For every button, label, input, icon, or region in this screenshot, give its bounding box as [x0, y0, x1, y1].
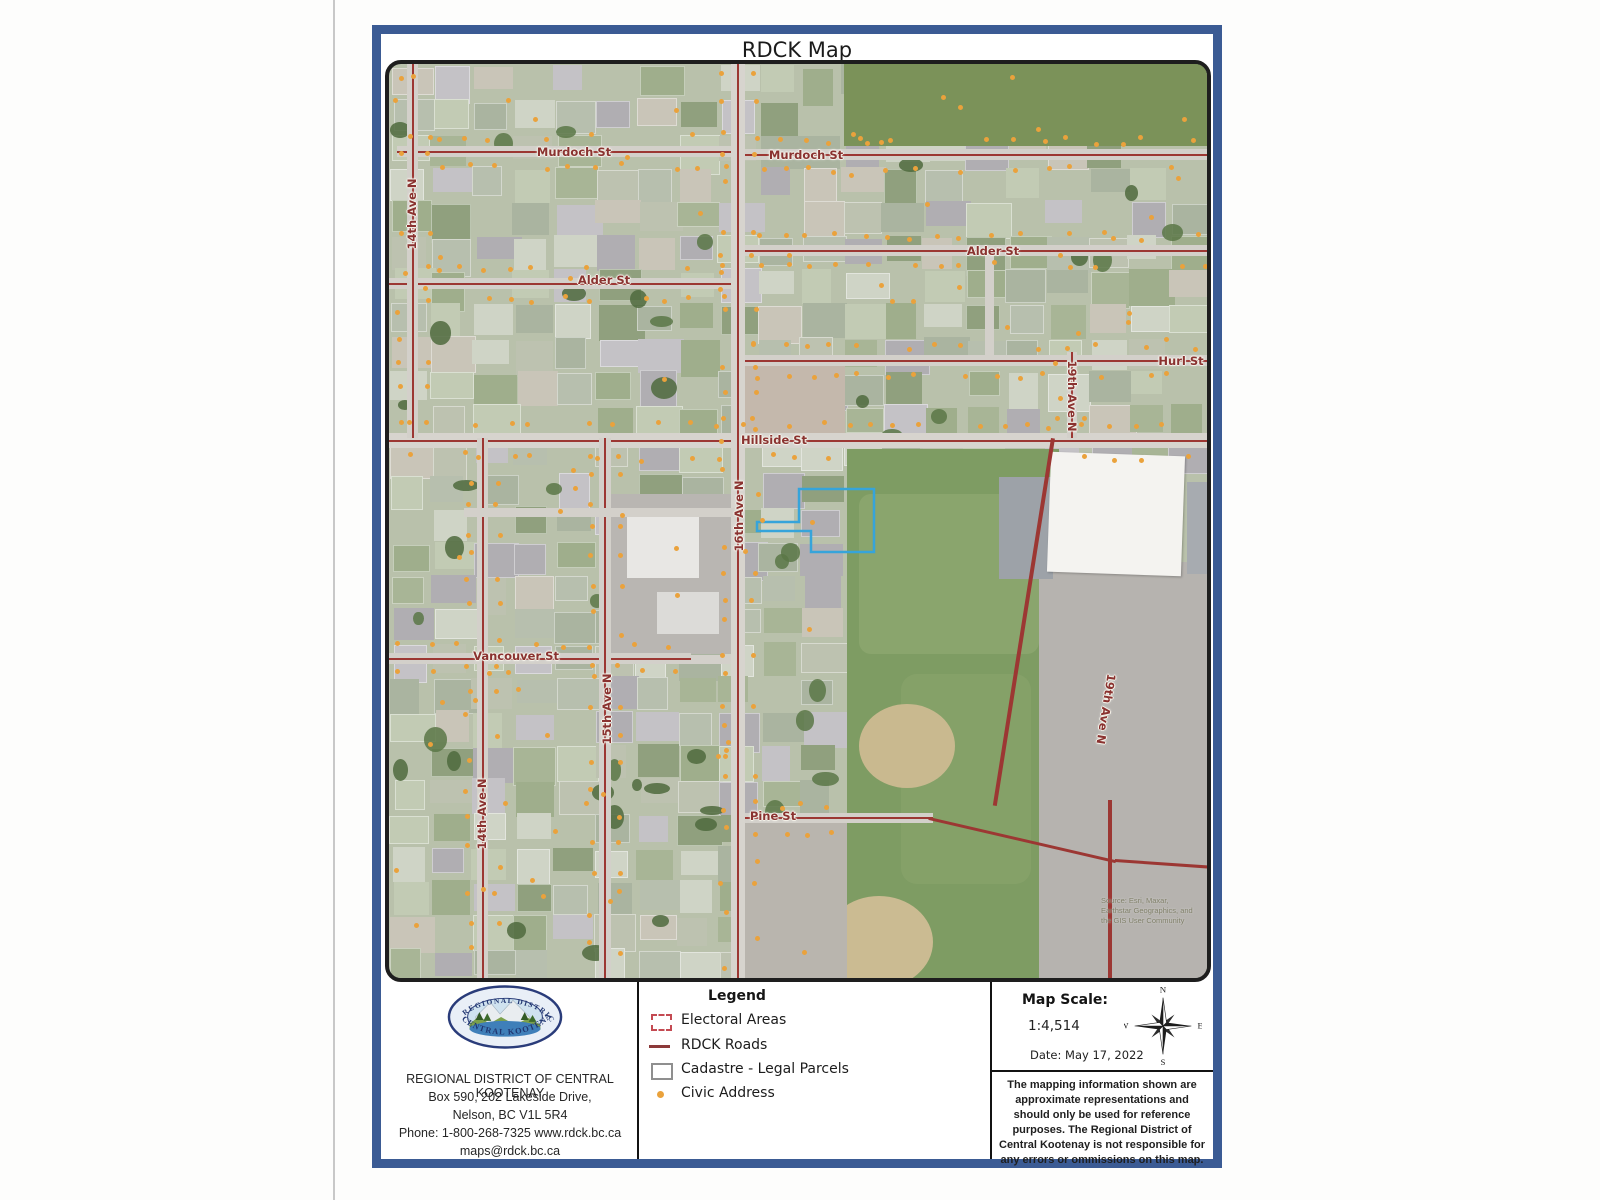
legend-row-cadastre: Cadastre - Legal Parcels — [639, 1060, 990, 1082]
civic-address-dot — [591, 584, 596, 589]
civic-address-dot — [849, 173, 854, 178]
civic-address-dot — [497, 638, 502, 643]
civic-address-dot — [956, 236, 961, 241]
civic-address-dot — [886, 375, 891, 380]
civic-address-dot — [588, 454, 593, 459]
legend-label: RDCK Roads — [681, 1037, 767, 1053]
civic-address-dot — [913, 263, 918, 268]
legend-panel: Legend Electoral Areas RDCK Roads Cadast… — [639, 982, 990, 1159]
civic-address-dot — [958, 343, 963, 348]
civic-address-dot — [1193, 347, 1198, 352]
civic-address-dot — [463, 712, 468, 717]
civic-address-dot — [826, 456, 831, 461]
civic-address-dot — [588, 553, 593, 558]
civic-address-dot — [785, 832, 790, 837]
street-label: Murdoch St — [537, 145, 611, 159]
civic-address-dot — [496, 481, 501, 486]
civic-address-dot — [563, 294, 568, 299]
compass-east-label: E — [1198, 1021, 1202, 1031]
scan-edge-artifact — [333, 0, 335, 1200]
civic-address-dot — [957, 285, 962, 290]
civic-address-dot — [1176, 176, 1181, 181]
civic-address-dot — [428, 742, 433, 747]
civic-address-dot — [469, 550, 474, 555]
civic-address-dot — [753, 571, 758, 576]
civic-address-dot — [1011, 137, 1016, 142]
civic-address-dot — [1046, 426, 1051, 431]
map-parcel — [1210, 68, 1211, 90]
civic-address-dot — [810, 520, 815, 525]
civic-address-dot — [397, 337, 402, 342]
rdck-roads-icon — [647, 1038, 673, 1054]
civic-address-dot — [1067, 231, 1072, 236]
civic-address-dot — [723, 598, 728, 603]
org-address-1: Box 590, 202 Lakeside Drive, — [383, 1090, 637, 1104]
civic-address-dot — [510, 421, 515, 426]
civic-address-dot — [440, 165, 445, 170]
civic-address-dot — [749, 253, 754, 258]
civic-address-dot — [722, 294, 727, 299]
civic-address-dot — [481, 268, 486, 273]
civic-address-dot — [762, 167, 767, 172]
compass-rose-icon: N E S W — [1124, 984, 1202, 1068]
map-parcel — [1210, 168, 1211, 205]
civic-address-dot — [1094, 142, 1099, 147]
civic-address-dot — [724, 910, 729, 915]
civic-address-dot — [675, 167, 680, 172]
legend-row-electoral-areas: Electoral Areas — [639, 1011, 990, 1033]
civic-address-dot — [454, 641, 459, 646]
scale-panel: Map Scale: 1:4,514 Date: May 17, 2022 N … — [992, 982, 1213, 1159]
civic-address-dot — [396, 360, 401, 365]
rdck-logo: REGIONAL DISTRICT CENTRAL KOOTENAY — [446, 984, 564, 1050]
source-line: Earthstar Geographics, and — [1101, 906, 1209, 916]
map-canvas: Source: Esri, Maxar, Earthstar Geographi… — [389, 64, 1211, 982]
map-scale-value: 1:4,514 — [1028, 1018, 1080, 1034]
source-line: Source: Esri, Maxar, — [1101, 896, 1209, 906]
civic-address-dot — [588, 705, 593, 710]
legend-label: Cadastre - Legal Parcels — [681, 1061, 849, 1077]
civic-address-dot — [753, 365, 758, 370]
civic-address-dot — [826, 141, 831, 146]
civic-address-dot — [1134, 424, 1139, 429]
civic-address-dot — [751, 704, 756, 709]
civic-address-dot — [885, 235, 890, 240]
document-frame: RDCK Map So — [372, 25, 1222, 1168]
civic-address-dot — [751, 230, 756, 235]
civic-address-dot — [618, 553, 623, 558]
civic-address-dot — [720, 704, 725, 709]
compass-south-label: S — [1161, 1057, 1166, 1067]
civic-address-dot — [424, 420, 429, 425]
civic-address-dot — [469, 921, 474, 926]
civic-address-dot — [568, 276, 573, 281]
street-label: Alder St — [967, 244, 1019, 258]
civic-address-dot — [812, 375, 817, 380]
civic-address-dot — [1055, 416, 1060, 421]
civic-address-dot — [498, 533, 503, 538]
civic-address-dot — [716, 754, 721, 759]
civic-address-dot — [759, 263, 764, 268]
civic-address-dot — [644, 296, 649, 301]
civic-address-dot — [618, 705, 623, 710]
civic-address-dot — [1127, 311, 1132, 316]
civic-address-dot — [932, 342, 937, 347]
civic-address-dot — [465, 843, 470, 848]
compass-west-label: W — [1124, 1021, 1129, 1031]
civic-address-dot — [656, 420, 661, 425]
legend-label: Civic Address — [681, 1085, 775, 1101]
legend-row-rdck-roads: RDCK Roads — [639, 1036, 990, 1058]
civic-address-dot — [1058, 396, 1063, 401]
civic-address-dot — [590, 524, 595, 529]
civic-address-dot — [513, 454, 518, 459]
organization-panel: REGIONAL DISTRICT CENTRAL KOOTENAY REGIO… — [383, 982, 637, 1159]
aerial-map: Source: Esri, Maxar, Earthstar Geographi… — [385, 60, 1211, 982]
civic-address-dot — [723, 307, 728, 312]
civic-address-dot — [805, 344, 810, 349]
street-label: 19th Ave N — [1065, 360, 1079, 431]
civic-address-dot — [508, 267, 513, 272]
civic-address-dot — [473, 423, 478, 428]
street-label: Pine St — [750, 809, 796, 823]
civic-address-dot — [1159, 422, 1164, 427]
civic-address-dot — [399, 151, 404, 156]
civic-address-dot — [749, 598, 754, 603]
civic-address-dot — [756, 492, 761, 497]
civic-address-dot — [751, 653, 756, 658]
civic-address-dot — [1112, 458, 1117, 463]
civic-address-dot — [437, 137, 442, 142]
civic-address-dot — [588, 787, 593, 792]
civic-address-dot — [588, 502, 593, 507]
civic-address-dot — [468, 162, 473, 167]
civic-address-dot — [984, 137, 989, 142]
street-label: 16th Ave N — [732, 480, 746, 551]
electoral-areas-icon — [647, 1013, 673, 1029]
civic-address-dot — [755, 376, 760, 381]
civic-address-dot — [911, 299, 916, 304]
civic-address-dot — [587, 645, 592, 650]
street-label: Murdoch St — [769, 148, 843, 162]
compass-north-label: N — [1160, 984, 1167, 994]
imagery-source-note: Source: Esri, Maxar, Earthstar Geographi… — [1101, 896, 1209, 926]
civic-address-dot — [719, 439, 724, 444]
highlighted-parcel — [389, 64, 1211, 982]
civic-address-dot — [907, 347, 912, 352]
civic-address-dot — [916, 422, 921, 427]
civic-address-dot — [590, 663, 595, 668]
civic-address-dot — [722, 966, 727, 971]
civic-address-dot — [1040, 371, 1045, 376]
civic-address-dot — [721, 571, 726, 576]
civic-address-dot — [619, 161, 624, 166]
street-label: 14th Ave N — [405, 178, 419, 249]
civic-address-dot — [545, 167, 550, 172]
page-title: RDCK Map — [381, 38, 1213, 62]
civic-address-dot — [718, 253, 723, 258]
civic-address-dot — [723, 390, 728, 395]
civic-address-dot — [1196, 232, 1201, 237]
civic-address-dot — [1036, 347, 1041, 352]
civic-address-dot — [925, 202, 930, 207]
civic-address-dot — [721, 808, 726, 813]
civic-address-dot — [1025, 422, 1030, 427]
civic-address-dot — [722, 723, 727, 728]
civic-address-dot — [698, 211, 703, 216]
disclaimer-text: The mapping information shown are approx… — [996, 1078, 1208, 1168]
civic-address-dot — [718, 881, 723, 886]
civic-address-dot — [618, 524, 623, 529]
civic-address-dot — [753, 799, 758, 804]
civic-address-dot — [425, 151, 430, 156]
civic-address-dot — [399, 420, 404, 425]
civic-address-dot — [493, 502, 498, 507]
civic-address-dot — [778, 137, 783, 142]
civic-address-dot — [883, 168, 888, 173]
civic-address-dot — [1182, 117, 1187, 122]
civic-address-dot — [462, 136, 467, 141]
civic-address-dot — [720, 365, 725, 370]
civic-address-dot — [1082, 416, 1087, 421]
highlighted-parcel-outline — [757, 489, 874, 552]
civic-address-dot — [494, 664, 499, 669]
civic-address-dot — [963, 374, 968, 379]
footer-divider — [992, 1070, 1213, 1072]
civic-address-dot — [784, 166, 789, 171]
civic-address-dot — [625, 155, 630, 160]
street-label: Vancouver St — [473, 649, 559, 663]
street-label: 14th Ave N — [475, 778, 489, 849]
civic-address-dot — [723, 179, 728, 184]
civic-address-dot — [608, 899, 613, 904]
street-label: Alder St — [578, 273, 630, 287]
civic-address-dot — [465, 814, 470, 819]
map-footer: REGIONAL DISTRICT CENTRAL KOOTENAY REGIO… — [383, 982, 1213, 1159]
civic-address-dot — [1203, 264, 1208, 269]
civic-address-dot — [466, 533, 471, 538]
civic-address-dot — [750, 416, 755, 421]
civic-address-dot — [492, 163, 497, 168]
civic-address-dot — [1121, 142, 1126, 147]
civic-address-dot — [792, 455, 797, 460]
map-parcel — [1210, 201, 1211, 235]
street-label: Hillside St — [741, 433, 807, 447]
civic-address-dot — [832, 231, 837, 236]
civic-address-dot — [690, 132, 695, 137]
civic-address-dot — [807, 264, 812, 269]
legend-label: Electoral Areas — [681, 1012, 786, 1028]
street-label: 15th Ave N — [600, 673, 614, 744]
civic-address-dot — [851, 132, 856, 137]
civic-address-dot — [754, 307, 759, 312]
civic-address-dot — [408, 134, 413, 139]
civic-address-dot — [584, 265, 589, 270]
civic-address-dot — [425, 384, 430, 389]
civic-address-dot — [592, 871, 597, 876]
org-address-2: Nelson, BC V1L 5R4 — [383, 1108, 637, 1122]
civic-address-dot — [754, 390, 759, 395]
org-phone: Phone: 1-800-268-7325 www.rdck.bc.ca — [383, 1126, 637, 1140]
civic-address-dot — [726, 740, 731, 745]
legend-title: Legend — [657, 988, 817, 1004]
civic-address-dot — [529, 300, 534, 305]
civic-address-dot — [587, 940, 592, 945]
source-line: the GIS User Community — [1101, 916, 1209, 926]
civic-address-dot — [414, 923, 419, 928]
civic-address-dot — [719, 270, 724, 275]
civic-address-dot — [497, 921, 502, 926]
civic-address-dot — [468, 689, 473, 694]
civic-address-dot — [1093, 342, 1098, 347]
civic-address-dot — [466, 502, 471, 507]
civic-address-dot — [666, 645, 671, 650]
civic-address-dot — [675, 593, 680, 598]
civic-address-dot — [545, 733, 550, 738]
civic-address-dot — [610, 422, 615, 427]
street-label: Hurl St — [1158, 354, 1203, 368]
org-email: maps@rdck.bc.ca — [383, 1144, 637, 1158]
cadastre-icon — [647, 1062, 673, 1078]
civic-address-dot — [530, 878, 535, 883]
civic-address-dot — [723, 671, 728, 676]
civic-address-icon — [647, 1086, 673, 1102]
civic-address-dot — [879, 283, 884, 288]
legend-row-civic-address: Civic Address — [639, 1084, 990, 1106]
civic-address-dot — [506, 98, 511, 103]
civic-address-dot — [802, 950, 807, 955]
civic-address-dot — [913, 166, 918, 171]
civic-address-dot — [720, 467, 725, 472]
civic-address-dot — [1093, 265, 1098, 270]
civic-address-dot — [717, 457, 722, 462]
map-scale-heading: Map Scale: — [1022, 992, 1108, 1008]
civic-address-dot — [721, 416, 726, 421]
civic-address-dot — [907, 237, 912, 242]
civic-address-dot — [807, 627, 812, 632]
civic-address-dot — [485, 138, 490, 143]
civic-address-dot — [639, 459, 644, 464]
civic-address-dot — [829, 830, 834, 835]
civic-address-dot — [720, 653, 725, 658]
civic-address-dot — [592, 674, 597, 679]
civic-address-dot — [469, 945, 474, 950]
civic-address-dot — [464, 664, 469, 669]
civic-address-dot — [686, 295, 691, 300]
